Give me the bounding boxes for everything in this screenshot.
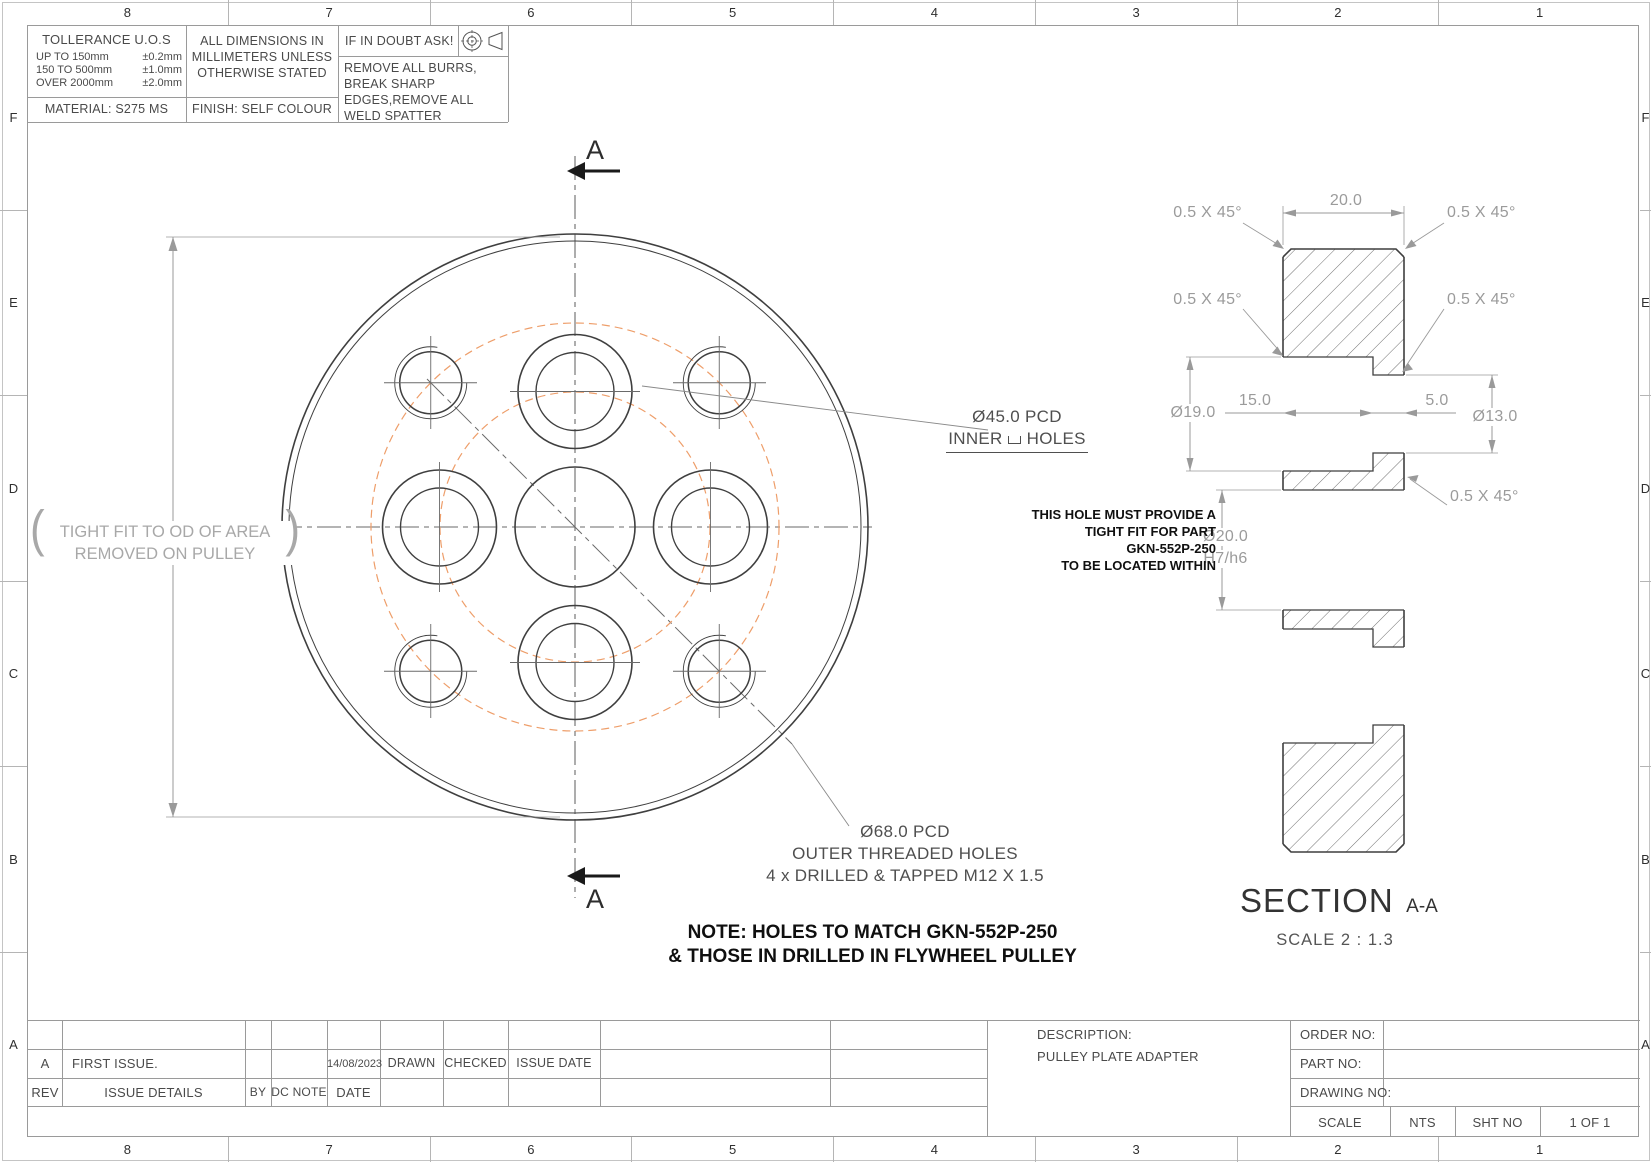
rev-header-by: BY — [245, 1085, 271, 1099]
counterbore-icon — [1008, 436, 1021, 444]
drawing-no-label: DRAWING NO: — [1300, 1085, 1391, 1100]
section-title: SECTION A-A — [1240, 882, 1438, 920]
title-line — [600, 1020, 601, 1106]
inner-pcd-suffix: HOLES — [1027, 429, 1086, 448]
chamfer-callout: 0.5 X 45° — [1450, 488, 1540, 506]
outer-pcd-line3: 4 x DRILLED & TAPPED M12 X 1.5 — [755, 865, 1055, 887]
scale-value: NTS — [1390, 1115, 1455, 1130]
tolerance-value: ±0.2mm — [142, 51, 182, 63]
info-divider — [508, 25, 509, 122]
dim-thru-dia: Ø13.0 — [1463, 408, 1527, 426]
rev-col-issue-date: ISSUE DATE — [508, 1056, 600, 1070]
rev-col-checked: CHECKED — [443, 1056, 508, 1070]
dim-cb-dia: Ø19.0 — [1161, 404, 1225, 422]
bore-fit-note-line4: TO BE LOCATED WITHIN — [1018, 557, 1216, 574]
chamfer-callout: 0.5 X 45° — [1447, 204, 1537, 222]
section-marker-bottom: A — [586, 884, 604, 915]
od-fit-note-line1: TIGHT FIT TO OD OF AREA — [39, 521, 291, 543]
section-title-suffix: A-A — [1406, 896, 1438, 917]
title-line — [28, 1106, 987, 1107]
section-internal-edges — [1283, 357, 1404, 743]
bore-fit-note: THIS HOLE MUST PROVIDE A TIGHT FIT FOR P… — [1018, 506, 1216, 574]
outer-pcd-dia: Ø68.0 PCD — [755, 821, 1055, 843]
title-line — [830, 1020, 831, 1106]
section-hatch — [1283, 249, 1404, 852]
dim-land: 5.0 — [1419, 392, 1455, 410]
dim-cb-depth: 15.0 — [1233, 392, 1277, 410]
info-divider — [338, 56, 508, 57]
tolerance-value: ±1.0mm — [142, 64, 182, 76]
paren-open: ( — [30, 517, 45, 542]
tolerance-range: 150 TO 500mm — [36, 64, 112, 76]
order-no-label: ORDER NO: — [1300, 1027, 1375, 1042]
rev-header-date: DATE — [327, 1085, 380, 1100]
info-divider — [458, 25, 459, 56]
rev-header-rev: REV — [28, 1085, 62, 1100]
od-fit-note-line2: REMOVED ON PULLEY — [39, 543, 291, 565]
bore-fit-note-line1: THIS HOLE MUST PROVIDE A — [1018, 506, 1216, 523]
title-line — [1290, 1049, 1640, 1050]
tolerance-row: 150 TO 500mm ±1.0mm — [36, 64, 182, 76]
sheet-no-label: SHT NO — [1455, 1115, 1540, 1130]
bore-fit-note-line3: GKN-552P-250 — [1018, 540, 1216, 557]
dims-note-line1: ALL DIMENSIONS IN — [186, 34, 338, 48]
od-fit-note: ( TIGHT FIT TO OD OF AREA REMOVED ON PUL… — [36, 521, 294, 565]
burrs-note: REMOVE ALL BURRS, BREAK SHARP EDGES,REMO… — [344, 60, 506, 124]
inner-pcd-holes-label: INNERHOLES — [946, 428, 1088, 453]
tolerance-row: OVER 2000mm ±2.0mm — [36, 77, 182, 89]
rev-entry-details: FIRST ISSUE. — [72, 1056, 158, 1071]
drawing-note-line2: & THOSE IN DRILLED IN FLYWHEEL PULLEY — [640, 945, 1105, 969]
finish-note: FINISH: SELF COLOUR — [186, 102, 338, 116]
inner-pcd-dia: Ø45.0 PCD — [922, 406, 1112, 428]
chamfer-callout: 0.5 X 45° — [1447, 291, 1537, 309]
tolerance-range: OVER 2000mm — [36, 77, 113, 89]
dim-width: 20.0 — [1322, 192, 1370, 210]
rev-entry-rev: A — [28, 1056, 62, 1071]
outer-pcd-leader — [792, 744, 849, 826]
scale-label: SCALE — [1290, 1115, 1390, 1130]
info-divider — [338, 25, 339, 122]
chamfer-callout: 0.5 X 45° — [1152, 204, 1242, 222]
paren-close: ) — [285, 517, 300, 542]
part-no-label: PART NO: — [1300, 1056, 1362, 1071]
rev-entry-date: 14/08/2023 — [327, 1058, 380, 1070]
description-value: PULLEY PLATE ADAPTER — [1037, 1049, 1199, 1064]
rev-header-details: ISSUE DETAILS — [62, 1085, 245, 1100]
dims-note-line2: MILLIMETERS UNLESS — [186, 50, 338, 64]
section-scale: SCALE 2 : 1.3 — [1240, 931, 1430, 950]
inner-pcd-callout: Ø45.0 PCD INNERHOLES — [922, 406, 1112, 453]
title-line — [987, 1020, 988, 1137]
drawing-note-line1: NOTE: HOLES TO MATCH GKN-552P-250 — [640, 921, 1105, 945]
bore-fit-note-line2: TIGHT FIT FOR PART — [1018, 523, 1216, 540]
dims-note-line3: OTHERWISE STATED — [186, 66, 338, 80]
sheet-no-value: 1 OF 1 — [1540, 1115, 1640, 1130]
tolerance-title: TOLLERANCE U.O.S — [27, 32, 186, 47]
title-line — [1290, 1106, 1640, 1107]
inner-pcd-prefix: INNER — [948, 429, 1002, 448]
description-label: DESCRIPTION: — [1037, 1027, 1132, 1042]
tolerance-range: UP TO 150mm — [36, 51, 109, 63]
rev-col-drawn: DRAWN — [380, 1056, 443, 1070]
drawing-note: NOTE: HOLES TO MATCH GKN-552P-250 & THOS… — [640, 921, 1105, 969]
title-line — [1290, 1078, 1640, 1079]
rev-header-dc-note: DC NOTE — [271, 1085, 327, 1099]
tolerance-row: UP TO 150mm ±0.2mm — [36, 51, 182, 63]
material-note: MATERIAL: S275 MS — [27, 102, 186, 116]
outer-pcd-line2: OUTER THREADED HOLES — [755, 843, 1055, 865]
section-marker-top: A — [586, 135, 604, 166]
first-angle-projection-icon — [461, 28, 507, 54]
doubt-note: IF IN DOUBT ASK! — [345, 34, 454, 48]
outer-pcd-callout: Ø68.0 PCD OUTER THREADED HOLES 4 x DRILL… — [755, 821, 1055, 887]
tolerance-value: ±2.0mm — [142, 77, 182, 89]
engineering-drawing-sheet: { "sheet": { "zone_numbers": ["8","7","6… — [0, 0, 1651, 1162]
section-title-text: SECTION — [1240, 882, 1394, 919]
chamfer-callout: 0.5 X 45° — [1152, 291, 1242, 309]
diagonal-centerline — [427, 379, 792, 744]
info-divider — [27, 97, 338, 98]
drawing-linework — [0, 0, 1651, 1162]
title-line — [28, 1020, 1640, 1021]
